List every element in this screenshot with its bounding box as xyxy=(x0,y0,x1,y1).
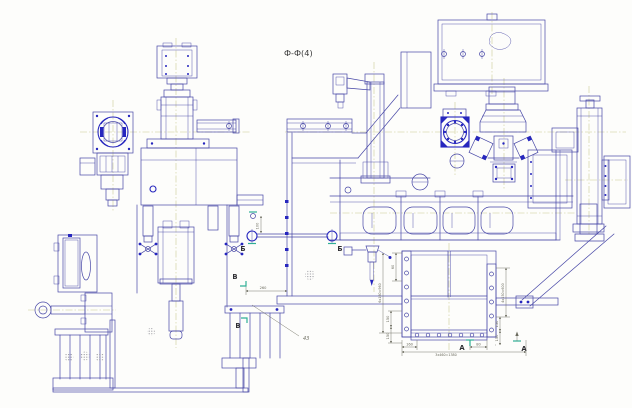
dim-150-left-bottom: 150 xyxy=(386,332,390,340)
handwheel-left xyxy=(139,243,158,256)
ladder-right xyxy=(222,306,284,388)
section-label-a-right: А xyxy=(521,345,527,353)
cross-rail xyxy=(197,119,352,133)
dim-6x160: 6x160=960 xyxy=(378,283,382,302)
coolant-tank xyxy=(573,96,609,232)
callout: 43 xyxy=(252,305,309,342)
dim-4x150: 4x150=600 xyxy=(501,283,505,302)
hopper-box xyxy=(434,14,548,96)
dim-3x460: 3x460=1380 xyxy=(435,353,457,357)
dim-160: 160 xyxy=(406,343,414,347)
dim-60: 60 xyxy=(391,264,395,269)
section-label-a-left: А xyxy=(459,344,465,352)
dim-80: 80 xyxy=(476,343,481,347)
machine-assembly-drawing: 100 260 60 6x160=960 150 150 160 80 3x46… xyxy=(0,0,632,408)
electrical-cabinet xyxy=(54,234,97,292)
section-label-v-lower: В xyxy=(235,322,240,330)
swing-arm xyxy=(333,74,370,108)
tow-eye-bar xyxy=(35,293,112,332)
dim-150-right-top: 150 xyxy=(495,320,499,328)
dim-150-left-top: 150 xyxy=(386,315,390,323)
cad-drawing-viewport: 100 260 60 6x160=960 150 150 160 80 3x46… xyxy=(0,0,632,408)
dim-100: 100 xyxy=(256,222,260,230)
left-gearbox-unit xyxy=(80,112,133,206)
section-label-b-left: Б xyxy=(240,245,245,253)
drill-spindle xyxy=(344,246,392,286)
view-title-text: Ф-Ф(4) xyxy=(284,48,313,58)
section-label-b-right: Б xyxy=(337,245,342,253)
left-lower-mechanisms xyxy=(137,205,243,339)
angled-pad-left xyxy=(469,136,493,160)
dim-150-right-bottom: 150 xyxy=(495,334,499,342)
rotary-head xyxy=(469,87,538,182)
section-label-v-upper: В xyxy=(232,273,237,281)
left-column-unit xyxy=(141,43,263,205)
callout-number: 43 xyxy=(303,336,309,342)
dim-260: 260 xyxy=(260,286,268,290)
angled-pad-right xyxy=(514,136,538,160)
support-column xyxy=(361,74,390,183)
ladder-left xyxy=(53,320,249,392)
view-title: Ф-Ф(4) xyxy=(284,48,313,58)
